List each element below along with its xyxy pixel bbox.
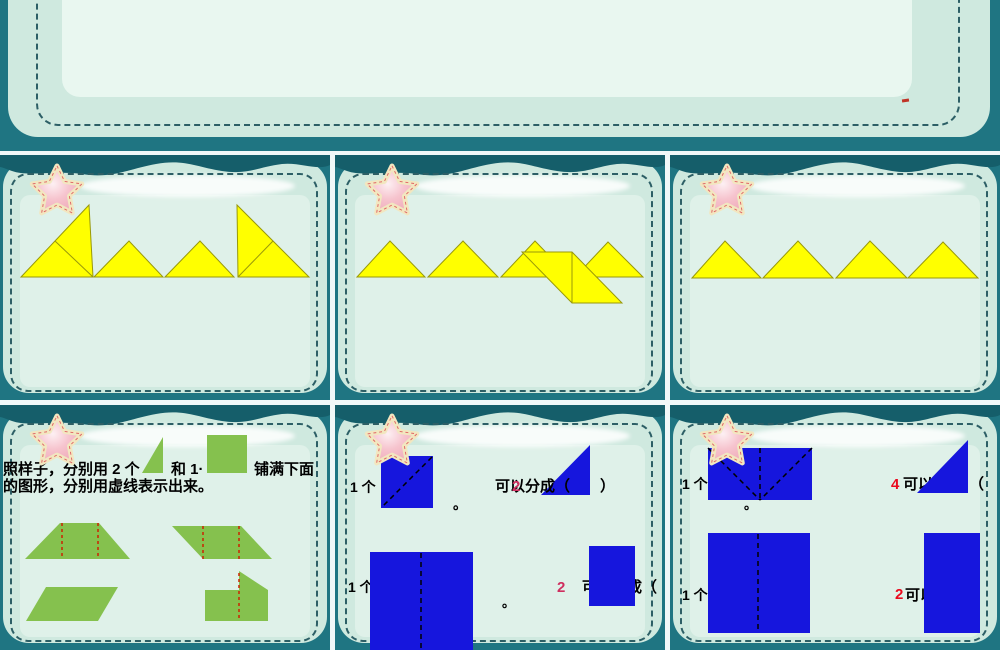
- answer-number: 2: [895, 586, 903, 603]
- period-mark: 。: [453, 496, 467, 512]
- green-parallelogram: [172, 526, 272, 559]
- yellow-triangle: [165, 241, 234, 277]
- yellow-triangle: [908, 242, 978, 278]
- green-shape-partial: [205, 571, 268, 621]
- question-prefix: 1 个: [682, 587, 709, 603]
- slide-thumbnail-r2c1[interactable]: 照样子，分别用 2 个和 1·铺满下面的图形，分别用虚线表示出来。: [0, 405, 330, 650]
- yellow-triangle: [428, 241, 498, 277]
- slide-thumbnail-r1c1[interactable]: [0, 155, 330, 400]
- question-prefix: 1 个: [350, 479, 377, 495]
- green-trapezoid: [25, 523, 130, 559]
- slide-thumbnail-top[interactable]: [0, 0, 1000, 151]
- star-icon: [363, 162, 421, 220]
- instruction-text-part3: 铺满下面: [254, 460, 314, 478]
- star-icon: [698, 412, 756, 470]
- answer-number: 2: [512, 478, 520, 495]
- instruction-text-line2: 的图形，分别用虚线表示出来。: [3, 477, 213, 495]
- blue-square: [589, 546, 635, 606]
- instruction-text-part2: 和 1·: [171, 461, 204, 478]
- star-icon: [698, 162, 756, 220]
- slide-thumbnail-r1c3[interactable]: [670, 155, 1000, 400]
- slide-dashed-border: [36, 0, 960, 126]
- yellow-triangle: [763, 241, 833, 278]
- period-mark: 。: [502, 595, 515, 610]
- yellow-triangle: [692, 241, 761, 278]
- green-triangle-icon: [142, 437, 163, 473]
- question-prefix: 1 个: [682, 476, 709, 492]
- star-icon: [28, 162, 86, 220]
- period-mark: 。: [744, 497, 757, 512]
- yellow-triangle: [357, 241, 425, 277]
- answer-number: 2: [557, 579, 565, 596]
- blue-rectangle: [708, 533, 810, 633]
- yellow-triangle: [94, 241, 163, 277]
- green-square-icon: [207, 435, 247, 473]
- yellow-triangle: [836, 241, 907, 278]
- blue-square: [924, 533, 980, 633]
- blue-right-triangle: [917, 440, 968, 493]
- star-icon: [363, 412, 421, 470]
- star-icon: [28, 412, 86, 470]
- slide-thumbnail-r2c3[interactable]: 可以（1 个4。1 个2可以分成（: [670, 405, 1000, 650]
- slide-thumbnail-r2c2[interactable]: 1 个可以分成（ ）2。1 个2可以分成（。: [335, 405, 665, 650]
- slide-thumbnail-r1c2[interactable]: [335, 155, 665, 400]
- question-text: （: [969, 475, 984, 493]
- answer-number: 4: [891, 476, 900, 493]
- green-parallelogram-partial: [26, 587, 118, 621]
